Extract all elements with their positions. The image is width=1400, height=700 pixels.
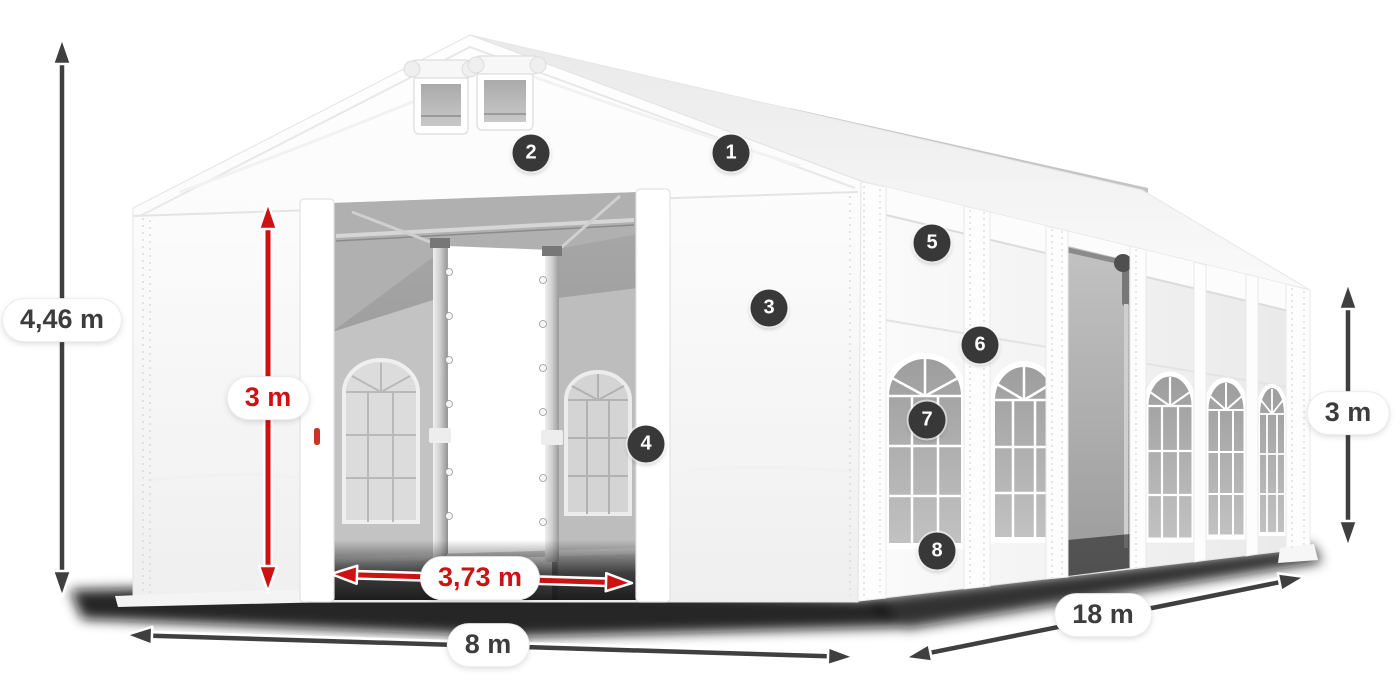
inner-window (566, 372, 630, 514)
callout-5[interactable]: 5 (914, 225, 951, 262)
tent-illustration (0, 0, 1400, 700)
dimension-label-door-height: 3 m (228, 377, 309, 419)
callout-8[interactable]: 8 (919, 533, 956, 570)
side-window (1146, 374, 1194, 540)
gable-vent-left (404, 60, 478, 134)
callout-4[interactable]: 4 (628, 426, 665, 463)
dimension-label-side-height: 3 m (1308, 392, 1389, 434)
callout-3[interactable]: 3 (751, 290, 788, 327)
callout-1[interactable]: 1 (713, 135, 750, 172)
side-window (1206, 380, 1246, 537)
dimension-label-total-height: 4,46 m (3, 299, 121, 341)
side-entrance-opening (1068, 246, 1132, 576)
side-window (886, 356, 964, 546)
side-window (1258, 386, 1286, 534)
entrance-interior (332, 190, 638, 600)
door-handle (314, 428, 320, 445)
dimension-label-length: 18 m (1055, 594, 1151, 636)
inner-window (344, 360, 418, 522)
callout-7[interactable]: 7 (909, 402, 946, 439)
dimension-label-door-width: 3,73 m (421, 557, 539, 599)
tent-dimensions-diagram: 4,46 m 3 m 3,73 m 8 m 18 m 3 m 1 2 3 4 5… (0, 0, 1400, 700)
callout-6[interactable]: 6 (962, 327, 999, 364)
dimension-label-front-width: 8 m (448, 624, 529, 666)
callout-2[interactable]: 2 (513, 135, 550, 172)
